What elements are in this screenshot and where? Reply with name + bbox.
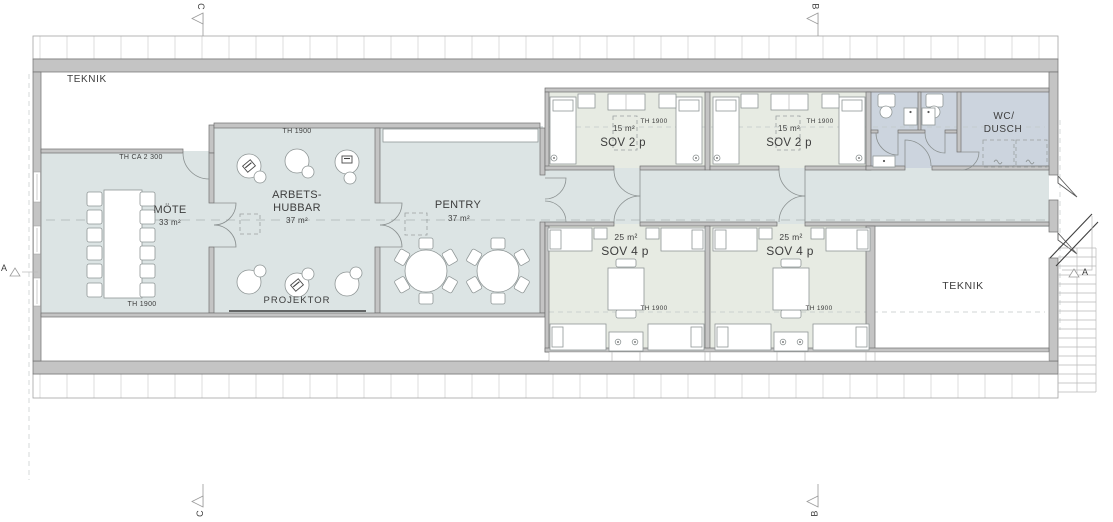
section-marker-c-bottom: C <box>196 510 205 517</box>
room-label-sov4p-right: SOV 4 p <box>766 245 813 257</box>
room-area-sov2p-left: 15 m² <box>613 125 635 133</box>
annotation-th1900-mote: TH 1900 <box>128 301 157 308</box>
room-label-sov2p-left: SOV 2 p <box>600 138 646 150</box>
room-label-teknik-top: TEKNIK <box>67 75 107 85</box>
annotation-th1900-sov2p-left: TH 1900 <box>640 119 667 126</box>
room-label-arbetshubbar-line2: HUBBAR <box>273 203 321 214</box>
room-area-pentry: 37 m² <box>448 215 470 223</box>
room-area-sov4p-right: 25 m² <box>779 233 802 242</box>
annotation-th1900-arbetshubbar: TH 1900 <box>283 128 312 135</box>
section-marker-a-right: A <box>1082 268 1088 277</box>
exit-doors <box>1058 176 1077 254</box>
floor-plan: TEKNIK TH CA 2 300 MÖTE 33 m² TH 1900 TH… <box>0 0 1113 522</box>
room-label-wc-line2: DUSCH <box>984 125 1023 135</box>
annotation-projektor: PROJEKTOR <box>264 296 331 306</box>
facade-windows <box>34 172 41 306</box>
room-label-teknik-bottom: TEKNIK <box>942 281 984 292</box>
room-label-arbetshubbar-line1: ARBETS- <box>272 190 322 201</box>
room-area-sov2p-right: 15 m² <box>778 125 800 133</box>
room-label-pentry: PENTRY <box>435 200 481 211</box>
annotation-th1900-sov4p-right: TH 1900 <box>805 306 832 313</box>
section-marker-b-bottom: B <box>811 510 820 516</box>
annotation-th1900-sov4p-left: TH 1900 <box>640 306 667 313</box>
room-label-sov4p-left: SOV 4 p <box>601 245 648 257</box>
section-marker-c-top: C <box>196 3 205 10</box>
section-marker-a-left: A <box>1 264 7 273</box>
hatch-band-bottom <box>33 374 1058 398</box>
room-area-sov4p-left: 25 m² <box>614 233 637 242</box>
room-label-wc-line1: WC/ <box>993 112 1014 122</box>
floor-plan-drawing <box>0 0 1113 522</box>
room-label-sov2p-right: SOV 2 p <box>766 138 812 150</box>
hatch-band-top <box>33 36 1058 59</box>
annotation-th-ca-2300: TH CA 2 300 <box>119 154 162 161</box>
room-area-mote: 33 m² <box>159 219 181 227</box>
annotation-th1900-sov2p-right: TH 1900 <box>806 119 833 126</box>
room-label-mote: MÖTE <box>154 205 187 216</box>
room-area-arbetshubbar: 37 m² <box>286 217 308 225</box>
window-strip <box>549 352 1049 361</box>
section-marker-b-top: B <box>811 3 820 9</box>
